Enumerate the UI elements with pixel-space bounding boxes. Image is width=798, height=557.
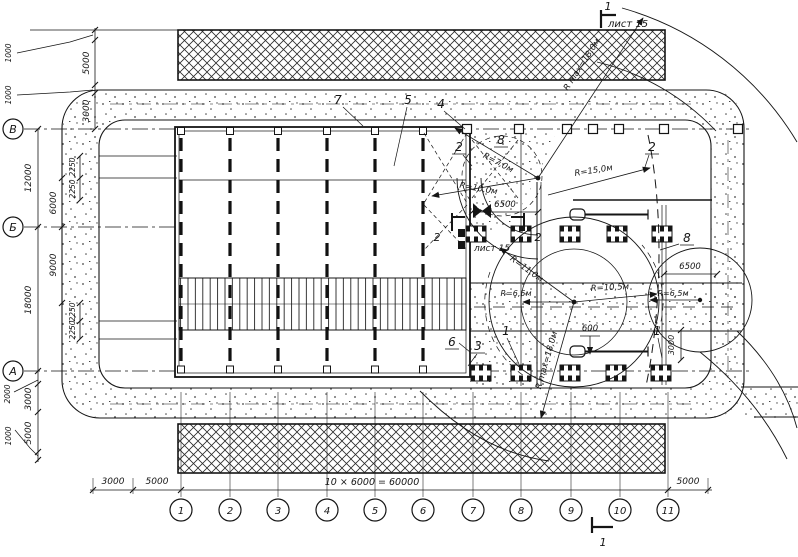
dim-gate-6500: 6500 <box>494 200 516 210</box>
dim-left-3000-top: 3000 <box>82 99 92 122</box>
dim-bottom-3000: 3000 <box>102 477 125 487</box>
row-axis-label-v: В <box>9 123 17 136</box>
radius-11: R=11,0м <box>508 254 545 285</box>
dim-left-3000-bottom: 3000 <box>24 387 34 410</box>
dim-left-1000-a: 1000 <box>4 43 13 62</box>
dim-left-2250-b: 2250 <box>68 179 77 198</box>
col-axis-label-8: 8 <box>518 506 524 517</box>
main-building <box>175 127 518 377</box>
section-2-right-label: 2 <box>535 231 542 244</box>
dim-bottom-main: 10 × 6000 = 60000 <box>325 477 420 488</box>
dim-left-2250-a: 2250 <box>68 157 77 176</box>
col-axis-label-5: 5 <box>372 506 378 517</box>
col-axis-label-4: 4 <box>324 506 330 517</box>
col-axis-label-3: 3 <box>275 506 281 517</box>
callout-1-right: 1 <box>653 324 661 338</box>
col-axis-label-6: 6 <box>420 506 426 517</box>
callout-2-right: 2 <box>648 140 656 154</box>
entrance-lines <box>99 156 177 339</box>
sheet-ref-mid: лист 15 <box>473 244 510 254</box>
dim-left-18000: 18000 <box>24 285 34 314</box>
row-axis-label-b: Б <box>9 221 17 234</box>
section-1-bottom-flag <box>592 517 613 533</box>
existing-building-bottom <box>178 424 665 473</box>
dim-left-2250-d: 2250 <box>68 320 77 339</box>
road-exit-stub <box>741 387 798 418</box>
site-plan-sheet: В Б А 1 2 3 4 5 6 7 8 9 10 11 3000 5000 … <box>0 0 798 557</box>
callout-1-center: 1 <box>502 324 510 338</box>
radius-105: R=10,5м <box>590 282 629 294</box>
dim-600: 600 <box>582 324 598 334</box>
callout-5: 5 <box>404 93 412 107</box>
dim-left-1000-c: 1000 <box>4 426 13 445</box>
section-1-top-label: 1 <box>605 0 612 13</box>
trailer-truck-top <box>570 209 648 220</box>
dim-right-3000: 3000 <box>667 335 676 355</box>
row-axis-bubbles: В Б А <box>3 119 23 381</box>
col-axis-label-9: 9 <box>568 506 574 517</box>
callout-8-top: 8 <box>497 133 505 147</box>
callout-6: 6 <box>448 335 456 349</box>
section-2-left-label: 2 <box>434 231 441 244</box>
callout-3: 3 <box>474 339 482 353</box>
section-1-bottom-label: 1 <box>600 536 607 549</box>
dim-right-6500: 6500 <box>679 262 701 272</box>
dim-left-5000-top: 5000 <box>82 51 92 74</box>
radius-15: R=15,0м <box>574 163 614 179</box>
site-plan-drawing: В Б А 1 2 3 4 5 6 7 8 9 10 11 3000 5000 … <box>0 0 798 557</box>
col-axis-label-2: 2 <box>227 506 233 517</box>
col-axis-label-1: 1 <box>178 506 184 517</box>
dim-left-2250-c: 2250 <box>68 302 77 321</box>
col-axis-label-10: 10 <box>614 506 627 517</box>
radius-65-right: R=6,5м <box>657 289 688 298</box>
dim-bottom-5000-right: 5000 <box>677 477 700 487</box>
dim-left-9000: 9000 <box>49 253 59 276</box>
callout-4: 4 <box>437 97 445 111</box>
col-axis-label-7: 7 <box>470 506 477 517</box>
trailer-truck-bottom <box>570 346 648 357</box>
dim-left-1000-b: 1000 <box>4 85 13 104</box>
col-axis-label-11: 11 <box>662 506 675 517</box>
callout-2-left: 2 <box>455 140 463 154</box>
callout-8-right: 8 <box>683 231 691 245</box>
dim-left-6000: 6000 <box>49 191 59 214</box>
radius-65-left: R=6,5м <box>500 289 531 298</box>
column-axis-bubbles: 1 2 3 4 5 6 7 8 9 10 11 <box>170 499 679 521</box>
row-axis-label-a: А <box>8 365 17 378</box>
dim-left-12000: 12000 <box>24 163 34 192</box>
dim-bottom-5000-left: 5000 <box>146 477 169 487</box>
dim-left-2000: 2000 <box>3 384 12 403</box>
callout-7: 7 <box>334 93 342 107</box>
sheet-ref-top: лист 15 <box>607 19 648 30</box>
dim-left-5000-bottom: 5000 <box>24 421 34 444</box>
